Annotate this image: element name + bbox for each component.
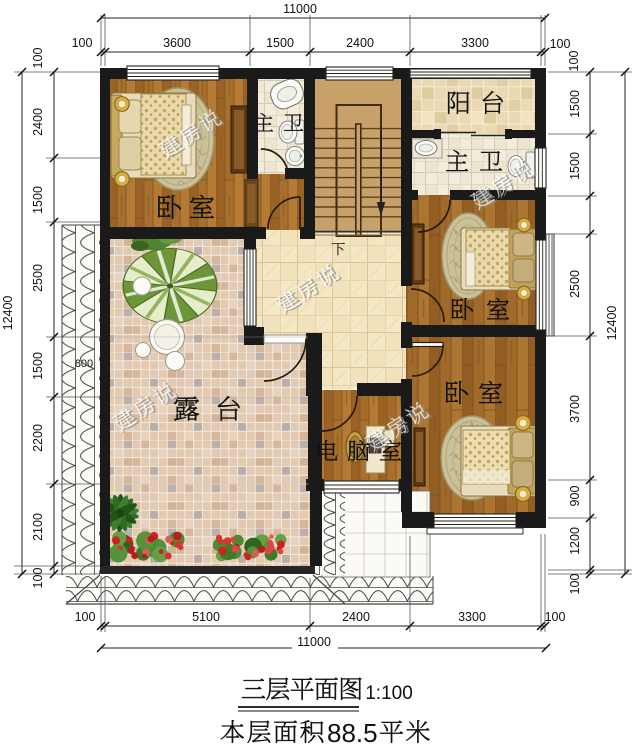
svg-text:2400: 2400: [342, 610, 370, 624]
svg-text:100: 100: [550, 37, 571, 51]
svg-text:2200: 2200: [31, 424, 45, 452]
svg-text:2500: 2500: [568, 270, 582, 298]
svg-text:100: 100: [75, 610, 96, 624]
svg-text:3700: 3700: [568, 395, 582, 423]
svg-text:12400: 12400: [605, 306, 619, 341]
svg-text:1500: 1500: [568, 90, 582, 118]
svg-text:100: 100: [72, 36, 93, 50]
svg-text:1500: 1500: [31, 352, 45, 380]
svg-text:100: 100: [545, 610, 566, 624]
svg-text:100: 100: [567, 51, 581, 72]
svg-text:2100: 2100: [31, 513, 45, 541]
svg-text:1200: 1200: [568, 527, 582, 555]
svg-text:1500: 1500: [568, 152, 582, 180]
svg-text:100: 100: [31, 568, 45, 589]
svg-text:100: 100: [31, 48, 45, 69]
svg-text:11000: 11000: [283, 2, 317, 16]
svg-text:1500: 1500: [31, 186, 45, 214]
svg-text:1500: 1500: [266, 36, 294, 50]
svg-text:900: 900: [568, 486, 582, 507]
svg-text:12400: 12400: [1, 296, 15, 331]
svg-text:1:100: 1:100: [365, 683, 413, 704]
svg-text:100: 100: [568, 574, 582, 595]
svg-text:3300: 3300: [458, 610, 486, 624]
svg-text:88.5: 88.5: [327, 718, 378, 748]
svg-text:2400: 2400: [346, 36, 374, 50]
svg-text:2400: 2400: [31, 108, 45, 136]
svg-text:2500: 2500: [31, 264, 45, 292]
svg-text:800: 800: [75, 358, 93, 370]
svg-text:3600: 3600: [163, 36, 191, 50]
svg-text:5100: 5100: [192, 610, 220, 624]
svg-text:11000: 11000: [297, 635, 331, 649]
svg-text:3300: 3300: [461, 36, 489, 50]
